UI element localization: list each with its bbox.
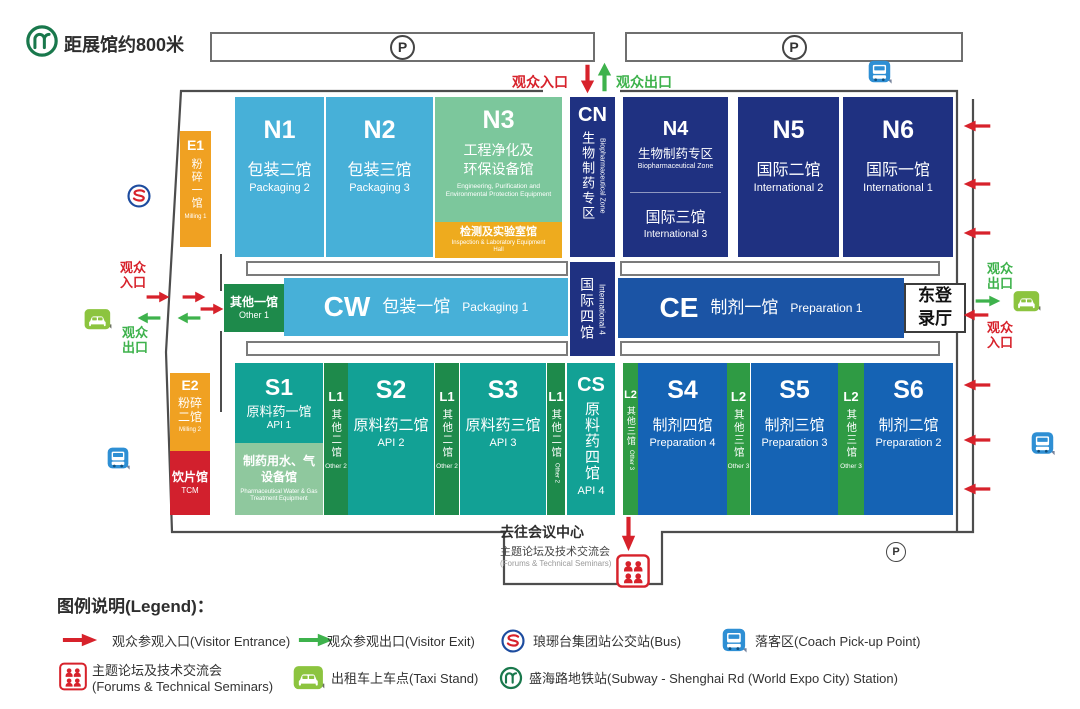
hall-name-cn: 工程净化及环保设备馆 (459, 141, 539, 179)
hall-name-cn: 粉碎一馆 (189, 158, 202, 210)
hall-name-en: Inspection & Laboratory Equipment Hall (449, 240, 549, 254)
legend-exit-label: 观众参观出口(Visitor Exit) (327, 634, 475, 650)
hall-code: N3 (483, 105, 515, 135)
hall-code: L2 (731, 389, 746, 405)
hall-code: N4 (663, 117, 689, 141)
legend-bus-icon (500, 628, 526, 654)
forums-icon (616, 554, 650, 588)
hall-name-en: Packaging 1 (462, 300, 528, 314)
hall-name-cn: 生物制药专区 (638, 147, 713, 162)
hall-code: S2 (376, 375, 407, 405)
hall-code: L1 (439, 389, 454, 405)
parking-icon: P (886, 542, 906, 562)
hall-international-4: 国际四馆 International 4 (570, 262, 615, 356)
hall-name-cn: 包装一馆 (382, 297, 450, 317)
hall-l2-other3: L2 其他三馆 Other 3 (838, 363, 864, 515)
hall-code: L1 (548, 389, 563, 405)
hall-name-en: Milling 2 (179, 427, 201, 434)
hall-code: CE (660, 291, 699, 325)
hall-name-cn: 原料药三馆 (465, 417, 540, 435)
hall-name-en: Other 1 (239, 310, 269, 321)
hall-name-cn: 制剂四馆 (652, 417, 712, 435)
hall-name-en: API 4 (578, 485, 605, 498)
hall-code: S3 (488, 375, 519, 405)
corridor (620, 341, 940, 356)
taxi-stand-icon (84, 308, 112, 331)
hall-code: L2 (843, 389, 858, 405)
hall-code: CS (577, 373, 605, 397)
hall-e2: E2 粉碎二馆 Milling 2 (170, 373, 210, 451)
hall-name-en: Preparation 2 (875, 437, 941, 450)
hall-name-cn: 原料药一馆 (246, 404, 311, 420)
hall-name-cn: 制剂一馆 (710, 298, 778, 318)
hall-code: N6 (882, 115, 914, 145)
legend-forums-icon (59, 662, 87, 691)
hall-code: S1 (265, 374, 293, 402)
hall-name-cn: 其他三馆 (625, 406, 636, 446)
hall-l2-other3: L2 其他三馆 Other 3 (727, 363, 750, 515)
hall-n3-inspection: 检测及实验室馆 Inspection & Laboratory Equipmen… (435, 222, 562, 258)
hall-name-cn: 包装三馆 (347, 161, 411, 180)
hall-code: S5 (779, 375, 810, 405)
east-registration-hall: 东登录厅 (904, 283, 966, 333)
hall-entry-arrow-icon (963, 379, 991, 391)
hall-code: CN (578, 103, 607, 127)
parking-icon: P (390, 35, 415, 60)
hall-name-cn: 原料药四馆 (582, 401, 600, 481)
hall-name-en: Other 2 (552, 463, 559, 483)
hall-code: E2 (181, 377, 198, 394)
legend-coach-icon (722, 628, 748, 654)
hall-n6: N6 国际一馆 International 1 (843, 97, 953, 257)
hall-l1-other2: L1 其他二馆 Other 2 (547, 363, 565, 515)
hall-name-cn: 国际二馆 (756, 161, 820, 180)
hall-s1: S1 原料药一馆 API 1 (235, 363, 323, 443)
bus-station-icon (126, 183, 152, 209)
hall-l2-other3: L2 其他三馆 Other 3 (623, 363, 638, 515)
hall-name-en: Preparation 3 (761, 437, 827, 450)
hall-name-en: Other 2 (436, 463, 458, 471)
hall-name-cn: 检测及实验室馆 (460, 226, 537, 239)
hall-name-en: Other 2 (325, 463, 347, 471)
hall-entry-arrow-icon (963, 227, 991, 239)
hall-code: S4 (667, 375, 698, 405)
legend-coach-label: 落客区(Coach Pick-up Point) (755, 634, 920, 650)
exit-arrow-icon (137, 312, 161, 324)
east-exit-label: 观众出口 (985, 262, 1015, 292)
entrance-arrow-icon (182, 291, 206, 303)
coach-pickup-icon (1031, 431, 1056, 457)
hall-name-en: Biopharmaceutical Zone (597, 138, 605, 214)
hall-name-cn: 饮片馆 (172, 470, 208, 484)
hall-name-cn: 制剂二馆 (878, 417, 938, 435)
hall-s3: S3 原料药三馆 API 3 (460, 363, 546, 515)
hall-code: E1 (187, 137, 204, 154)
hall-ce: CE 制剂一馆 Preparation 1 (618, 278, 904, 338)
legend-entrance-label: 观众参观入口(Visitor Entrance) (112, 634, 290, 650)
hall-code: N2 (364, 115, 396, 145)
hall-code: L2 (624, 389, 637, 402)
hall-name-en: International 2 (754, 182, 824, 195)
expo-map: 距展馆约800米 P P 观众入口 观众出口 E1 粉碎一馆 Milling 1… (0, 0, 1080, 709)
hall-name-cn: 国际三馆 (645, 209, 705, 227)
hall-name-cn: 国际一馆 (866, 161, 930, 180)
hall-name-en: Preparation 4 (649, 437, 715, 450)
legend-forums-label-en: (Forums & Technical Seminars) (92, 679, 273, 695)
hall-name-en: Other 3 (728, 463, 750, 471)
hall-name-en: Other 3 (627, 450, 634, 470)
hall-s2: S2 原料药二馆 API 2 (348, 363, 434, 515)
hall-code: L1 (328, 389, 343, 405)
hall-l1-other2: L1 其他二馆 Other 2 (324, 363, 348, 515)
top-entrance-label: 观众入口 (512, 72, 568, 92)
exit-up-arrow-icon (597, 62, 612, 92)
hall-e1: E1 粉碎一馆 Milling 1 (180, 131, 211, 247)
hall-name-en: Other 3 (840, 463, 862, 471)
hall-entry-arrow-icon (963, 120, 991, 132)
coach-pickup-icon (107, 447, 131, 471)
hall-n2: N2 包装三馆 Packaging 3 (326, 97, 433, 257)
hall-name-en: API 1 (267, 420, 291, 432)
hall-name-cn: 制药用水、气设备馆 (242, 454, 316, 485)
legend-taxi-icon (293, 665, 325, 691)
hall-name-en: Milling 1 (184, 214, 206, 221)
metro-logo-icon (25, 24, 59, 58)
hall-name-cn: 包装二馆 (247, 161, 311, 180)
legend-subway-icon (499, 666, 523, 690)
parking-lot-north-east: P (625, 32, 963, 62)
legend-subway-label: 盛海路地铁站(Subway - Shenghai Rd (World Expo … (529, 671, 898, 687)
hall-n1: N1 包装二馆 Packaging 2 (235, 97, 324, 257)
hall-name-en: International 1 (863, 182, 933, 195)
legend-taxi-label: 出租车上车点(Taxi Stand) (331, 671, 478, 687)
conference-subtitle-en: (Forums & Technical Seminars) (500, 559, 630, 568)
hall-name-en: International 4 (597, 284, 607, 335)
hall-s6: S6 制剂二馆 Preparation 2 (864, 363, 953, 515)
hall-name-en: Preparation 1 (790, 301, 862, 315)
parking-lot-north-west: P (210, 32, 595, 62)
conference-title: 去往会议中心 (500, 522, 630, 542)
entrance-down-arrow-icon (580, 64, 595, 94)
hall-name-cn: 其他三馆 (845, 409, 858, 459)
hall-s4: S4 制剂四馆 Preparation 4 (638, 363, 727, 515)
hall-name-cn: 其他二馆 (550, 409, 563, 459)
hall-s5: S5 制剂三馆 Preparation 3 (751, 363, 838, 515)
legend-title: 图例说明(Legend)： (57, 592, 214, 617)
hall-name-en: TCM (181, 486, 198, 496)
hall-name-en: International 3 (644, 229, 707, 241)
entrance-arrow-icon (200, 303, 224, 315)
hall-name-en: Engineering, Purification and Environmen… (445, 183, 553, 200)
hall-name-en: Packaging 3 (349, 182, 410, 195)
hall-entry-arrow-icon (963, 434, 991, 446)
entrance-arrow-icon (146, 291, 170, 303)
taxi-stand-icon (1013, 290, 1041, 313)
corridor (620, 261, 940, 276)
coach-pickup-icon (868, 60, 893, 85)
hall-entry-arrow-icon (963, 178, 991, 190)
metro-distance-label: 距展馆约800米 (64, 31, 184, 57)
hall-name-en: API 2 (378, 437, 405, 450)
hall-name-cn: 其他一馆 (230, 295, 278, 309)
legend-forums-label-cn: 主题论坛及技术交流会 (92, 663, 222, 679)
hall-cs-api4: CS 原料药四馆 API 4 (567, 363, 615, 515)
hall-n5: N5 国际二馆 International 2 (738, 97, 839, 257)
legend-entrance-arrow-icon (62, 633, 98, 647)
hall-name-cn: 其他三馆 (732, 409, 745, 459)
corridor (246, 341, 568, 356)
hall-name-cn: 其他二馆 (441, 409, 454, 459)
to-conference-arrow-icon (621, 516, 636, 552)
conference-note: 去往会议中心 主题论坛及技术交流会 (Forums & Technical Se… (500, 522, 630, 568)
hall-cw: CW 包装一馆 Packaging 1 (284, 278, 568, 336)
hall-code: S6 (893, 375, 924, 405)
hall-name-cn: 粉碎二馆 (176, 396, 204, 425)
hall-name-cn: 原料药二馆 (353, 417, 428, 435)
west-exit-label: 观众出口 (120, 326, 150, 356)
hall-code: N5 (773, 115, 805, 145)
parking-icon: P (782, 35, 807, 60)
hall-name-cn: 其他二馆 (330, 409, 343, 459)
corridor (246, 261, 568, 276)
top-exit-label: 观众出口 (616, 72, 672, 92)
exit-arrow-icon (177, 312, 201, 324)
hall-entry-arrow-icon (963, 483, 991, 495)
hall-name-en: Packaging 2 (249, 182, 310, 195)
legend-bus-label: 琅琊台集团站公交站(Bus) (533, 634, 681, 650)
hall-name-en: Biopharmaceutical Zone (638, 163, 714, 171)
hall-name-en: API 3 (490, 437, 517, 450)
hall-name-cn: 东登录厅 (915, 285, 955, 331)
east-entrance-label: 观众入口 (985, 321, 1015, 351)
hall-code: CW (324, 290, 371, 324)
entrance-arrow-icon (963, 309, 989, 321)
hall-cn-biopharma: CN 生物制药专区 Biopharmaceutical Zone (570, 97, 615, 257)
exit-arrow-icon (975, 295, 1001, 307)
hall-pharma-water-gas: 制药用水、气设备馆 Pharmaceutical Water & Gas Tre… (235, 443, 323, 515)
hall-name-en: Pharmaceutical Water & Gas Treatment Equ… (239, 489, 319, 504)
hall-code: N1 (264, 115, 296, 145)
hall-n3: N3 工程净化及环保设备馆 Engineering, Purification … (435, 97, 562, 222)
conference-subtitle-cn: 主题论坛及技术交流会 (500, 543, 630, 559)
hall-l1-other2: L1 其他二馆 Other 2 (435, 363, 459, 515)
hall-other-1: 其他一馆 Other 1 (224, 284, 284, 332)
hall-n4: N4 生物制药专区 Biopharmaceutical Zone 国际三馆 In… (623, 97, 728, 257)
west-entrance-label: 观众入口 (118, 261, 148, 291)
hall-name-cn: 制剂三馆 (764, 417, 824, 435)
hall-name-cn: 生物制药专区 (580, 131, 596, 221)
hall-name-cn: 国际四馆 (578, 277, 595, 341)
hall-tcm: 饮片馆 TCM (170, 451, 210, 515)
